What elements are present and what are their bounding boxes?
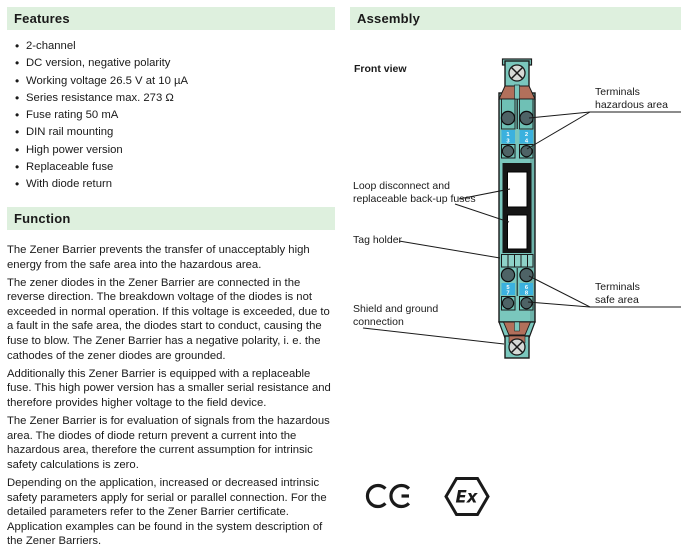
terminal-screw xyxy=(502,146,513,157)
top-screw-terminal xyxy=(499,59,535,99)
terminal-screw xyxy=(521,298,532,309)
callout-line: safe area xyxy=(595,294,640,307)
callout-line: Terminals xyxy=(595,86,668,99)
callout-line: Shield and ground xyxy=(353,303,438,316)
ex-mark-label: Ex xyxy=(456,488,479,507)
callout-line: hazardous area xyxy=(595,99,668,112)
callout-line: connection xyxy=(353,316,438,329)
fuse-block xyxy=(503,163,532,253)
ex-mark-icon: Ex xyxy=(446,479,488,515)
bottom-screw-terminal xyxy=(499,322,535,358)
terminal-number: 2 xyxy=(525,132,528,138)
ce-mark-icon xyxy=(367,486,409,507)
callout-line: Loop disconnect and xyxy=(353,180,476,193)
callout-line: replaceable back-up fuses xyxy=(353,193,476,206)
terminal-number: 7 xyxy=(506,291,509,297)
screw-icon xyxy=(509,339,525,355)
fuse-window-1 xyxy=(508,172,528,207)
callout-tag-holder: Tag holder xyxy=(353,234,402,247)
callout-line: Tag holder xyxy=(353,234,402,247)
callout-loop-fuses: Loop disconnect and replaceable back-up … xyxy=(353,180,476,206)
leader-line-shield-ground xyxy=(363,328,504,344)
terminal-screw xyxy=(502,298,513,309)
datasheet-page: Features 2-channel DC version, negative … xyxy=(0,0,683,560)
leader-line-terminals-hazardous-1 xyxy=(529,112,681,118)
terminal-screw xyxy=(501,268,514,281)
callout-terminals-hazardous: Terminals hazardous area xyxy=(595,86,668,112)
terminal-screw xyxy=(520,268,533,281)
fuse-window-2 xyxy=(508,215,528,249)
callout-terminals-safe: Terminals safe area xyxy=(595,281,640,307)
tag-holder xyxy=(502,255,534,268)
assembly-diagram: 1 2 3 4 5 xyxy=(0,0,683,560)
callout-line: Terminals xyxy=(595,281,640,294)
terminal-screw xyxy=(501,111,514,124)
callout-shield-ground: Shield and ground connection xyxy=(353,303,438,329)
leader-line-tag-holder xyxy=(399,241,500,258)
screw-icon xyxy=(509,65,525,81)
front-view-label: Front view xyxy=(354,63,407,76)
